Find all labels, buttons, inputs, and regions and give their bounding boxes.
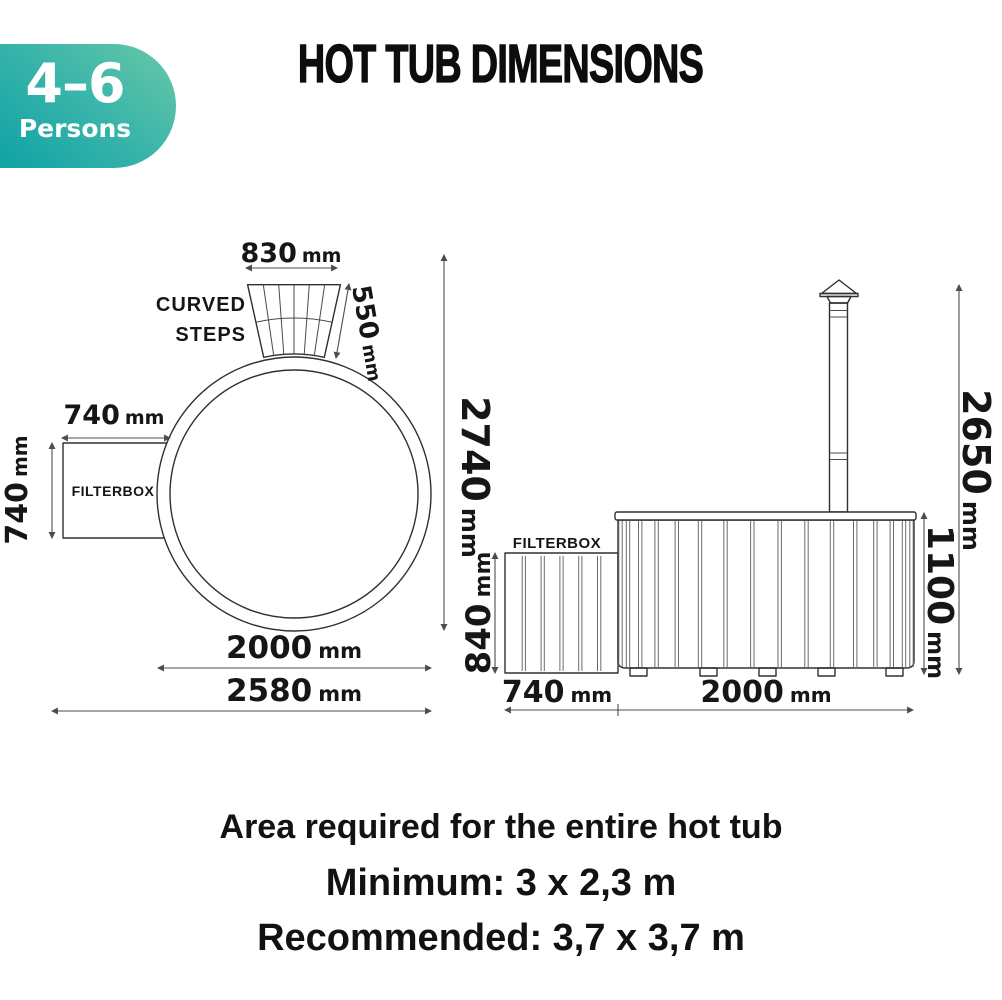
steps-board-line: [304, 285, 309, 355]
curved-steps-label-1: CURVED: [156, 294, 246, 316]
tub-foot: [818, 668, 835, 676]
page: 4–6 Persons HOT TUB DIMENSIONS: [0, 0, 1002, 1000]
dim-label-tub-width: 2000mm: [700, 675, 831, 710]
dim-label-steps-width: 830mm: [241, 238, 342, 269]
recommended-area-text: Recommended: 3,7 x 3,7 m: [0, 917, 1002, 960]
dim-label-overall-height: 2650mm: [954, 389, 998, 551]
dim-label-filterbox-height: 840mm: [459, 552, 499, 675]
tub-foot: [886, 668, 903, 676]
tub-outer-circle: [157, 357, 431, 631]
chimney-cap-cone: [822, 280, 857, 294]
tub-foot: [630, 668, 647, 676]
dim-label-tub-height: 1100mm: [919, 525, 960, 679]
side-view-diagram: FILTERBOX 840mm 740mm 2000mm 1100mm 2650…: [459, 280, 998, 716]
chimney: [820, 280, 858, 512]
dim-label-overall-length: 2740mm: [453, 396, 497, 558]
tub-rim: [615, 512, 916, 520]
filterbox-label-side-view: FILTERBOX: [513, 535, 601, 552]
dim-label-filterbox-depth: 740mm: [0, 435, 35, 544]
tub-body: [618, 520, 914, 668]
chimney-cap-collar: [827, 297, 851, 304]
dim-label-filterbox-width-side: 740mm: [502, 675, 612, 710]
dim-label-steps-depth: 550mm: [345, 283, 391, 384]
steps-board-line: [279, 285, 284, 355]
dim-label-tub-diameter: 2000mm: [226, 630, 362, 666]
dimension-diagrams: CURVED STEPS FILTERBOX 830mm 550mm 740mm…: [0, 0, 1002, 1000]
filterbox-label-top-view: FILTERBOX: [72, 483, 155, 499]
chimney-pipe: [830, 303, 848, 512]
area-required-text: Area required for the entire hot tub: [0, 808, 1002, 847]
curved-steps: [248, 285, 341, 358]
minimum-area-text: Minimum: 3 x 2,3 m: [0, 862, 1002, 905]
dim-label-filterbox-width: 740mm: [64, 400, 165, 431]
curved-steps-label-2: STEPS: [175, 324, 246, 346]
dim-label-overall-width: 2580mm: [226, 673, 362, 709]
top-view-diagram: CURVED STEPS FILTERBOX 830mm 550mm 740mm…: [0, 238, 497, 711]
